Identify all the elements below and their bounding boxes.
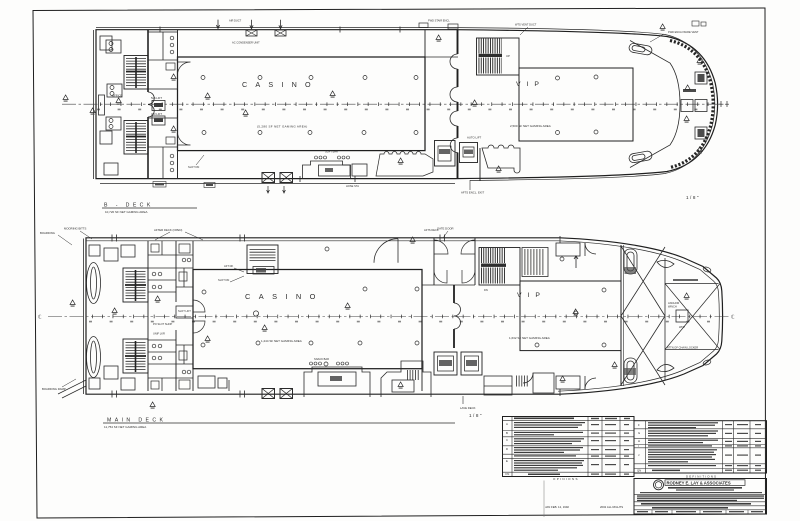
svg-text:ATTN OF CHAIN LOCKER: ATTN OF CHAIN LOCKER	[667, 346, 698, 350]
svg-text:AC CONDENSER UNIT: AC CONDENSER UNIT	[232, 41, 260, 45]
svg-text:AUTO LIFT: AUTO LIFT	[467, 136, 482, 140]
svg-text:5x5 LIFT: 5x5 LIFT	[151, 96, 162, 100]
svg-text:CASINO: CASINO	[242, 80, 319, 89]
svg-text:VIP: VIP	[516, 81, 545, 88]
svg-text:RODNEY E. LAY & ASSOCIATES: RODNEY E. LAY & ASSOCIATES	[667, 480, 731, 485]
svg-text:(5,280 SF NET GAMING AREA): (5,280 SF NET GAMING AREA)	[257, 125, 308, 129]
svg-text:A: A	[506, 422, 508, 426]
svg-text:10,720 SF NET GAMING AREA: 10,720 SF NET GAMING AREA	[105, 210, 147, 214]
svg-text:MOORING BITTS: MOORING BITTS	[64, 227, 87, 231]
svg-text:AFTS ENCL. EXIT: AFTS ENCL. EXIT	[461, 191, 484, 195]
svg-text:WNP: WNP	[679, 325, 685, 329]
svg-text:UP: UP	[506, 54, 510, 58]
svg-text:C: C	[506, 438, 508, 442]
svg-text:OPINIONS: OPINIONS	[553, 477, 579, 481]
svg-text:SLOT DN: SLOT DN	[188, 165, 199, 169]
svg-text:1/8": 1/8"	[469, 413, 483, 418]
svg-text:D: D	[506, 447, 508, 451]
svg-text:ANCHOR: ANCHOR	[668, 301, 679, 305]
svg-text:FWD ENCLOSURE VENT: FWD ENCLOSURE VENT	[668, 30, 699, 34]
svg-text:3x3 LIFT: 3x3 LIFT	[151, 112, 162, 116]
svg-text:PO SLOT SHOP: PO SLOT SHOP	[153, 322, 173, 326]
svg-text:B: B	[506, 431, 508, 435]
svg-text:AIR DUCT: AIR DUCT	[229, 19, 242, 23]
svg-text:1,244 SF NET GAMING AREA: 1,244 SF NET GAMING AREA	[261, 339, 302, 343]
svg-text:QN: QN	[637, 469, 641, 473]
svg-text:FWD STAIR ENCL: FWD STAIR ENCL	[428, 19, 450, 23]
svg-text:DN: DN	[484, 288, 488, 292]
svg-text:JAN FEB. 12, 1992: JAN FEB. 12, 1992	[545, 505, 569, 509]
svg-text:H: H	[638, 439, 640, 443]
svg-text:HOSE STA: HOSE STA	[346, 184, 359, 188]
svg-text:SLOT LIFT: SLOT LIFT	[178, 309, 191, 313]
svg-text:AFTER DECK (OPEN): AFTER DECK (OPEN)	[154, 228, 182, 232]
svg-text:F: F	[638, 423, 640, 427]
svg-text:WINCH: WINCH	[668, 305, 677, 309]
svg-text:VIP: VIP	[517, 292, 546, 299]
svg-text:BOARDING RAMP: BOARDING RAMP	[42, 387, 66, 391]
svg-text:LAVE DECK: LAVE DECK	[460, 406, 476, 410]
svg-text:OFFICE: OFFICE	[112, 94, 122, 98]
svg-text:2002 ALL RIGHTS: 2002 ALL RIGHTS	[600, 505, 623, 509]
svg-text:ℂ: ℂ	[38, 315, 42, 321]
svg-text:WTS VENT DUCT: WTS VENT DUCT	[515, 23, 537, 27]
svg-text:2,500 SF NET GAMING AREA: 2,500 SF NET GAMING AREA	[510, 124, 551, 128]
svg-text:DEFINITIONS: DEFINITIONS	[686, 475, 717, 479]
svg-text:UNIF LKR: UNIF LKR	[153, 332, 165, 336]
svg-text:CASINO: CASINO	[245, 292, 324, 301]
svg-text:E: E	[506, 459, 508, 463]
svg-text:BOARDING: BOARDING	[40, 231, 55, 235]
svg-text:SOFT BAR: SOFT BAR	[325, 150, 338, 154]
svg-text:GATE DOOR: GATE DOOR	[437, 227, 454, 231]
svg-text:G: G	[638, 431, 640, 435]
svg-text:1,632 SF NET GAMING AREA: 1,632 SF NET GAMING AREA	[509, 336, 550, 340]
svg-text:11,754 SF NET GAMING AREA: 11,754 SF NET GAMING AREA	[104, 425, 146, 429]
svg-text:ℂ: ℂ	[731, 315, 735, 321]
svg-text:FN: FN	[506, 472, 510, 476]
svg-text:AFT DK: AFT DK	[224, 264, 233, 268]
svg-text:SLOT DN: SLOT DN	[218, 278, 229, 282]
svg-text:1/8": 1/8"	[686, 195, 700, 200]
svg-text:SNACK BAR: SNACK BAR	[314, 357, 329, 361]
